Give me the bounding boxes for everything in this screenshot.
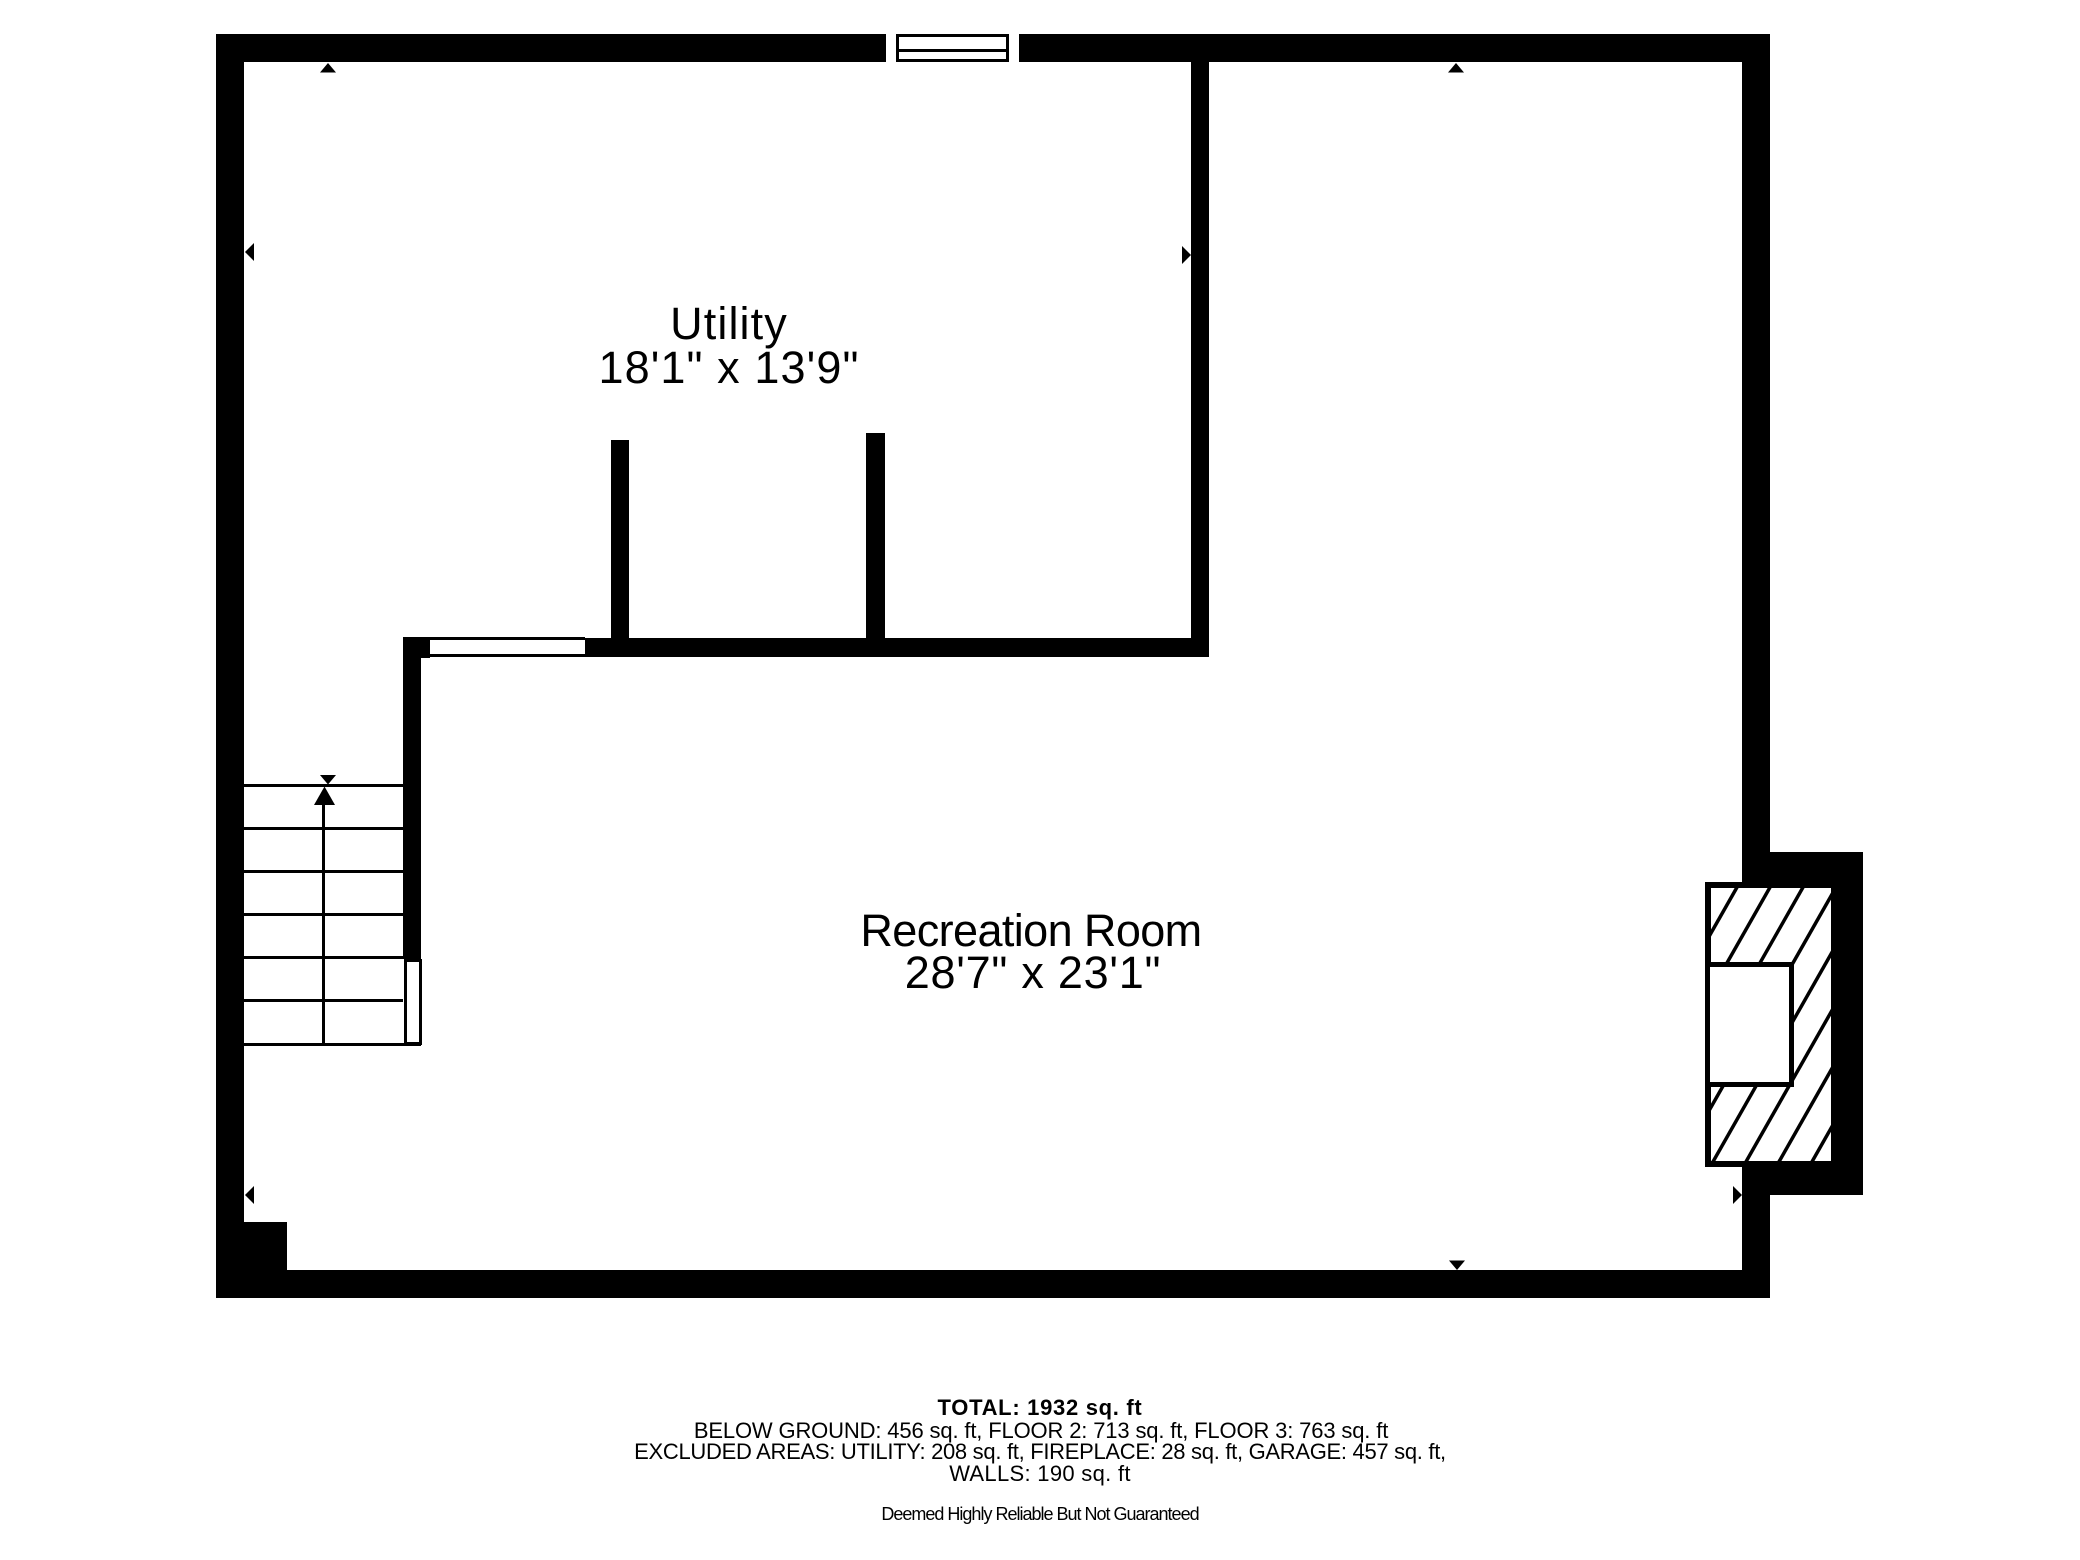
- svg-text:Deemed Highly Reliable But Not: Deemed Highly Reliable But Not Guarantee…: [881, 1504, 1198, 1524]
- svg-text:28'7" x 23'1": 28'7" x 23'1": [905, 947, 1162, 998]
- svg-text:18'1" x 13'9": 18'1" x 13'9": [598, 342, 859, 393]
- svg-text:TOTAL: 1932 sq. ft: TOTAL: 1932 sq. ft: [938, 1395, 1143, 1420]
- svg-text:WALLS: 190 sq. ft: WALLS: 190 sq. ft: [949, 1461, 1131, 1486]
